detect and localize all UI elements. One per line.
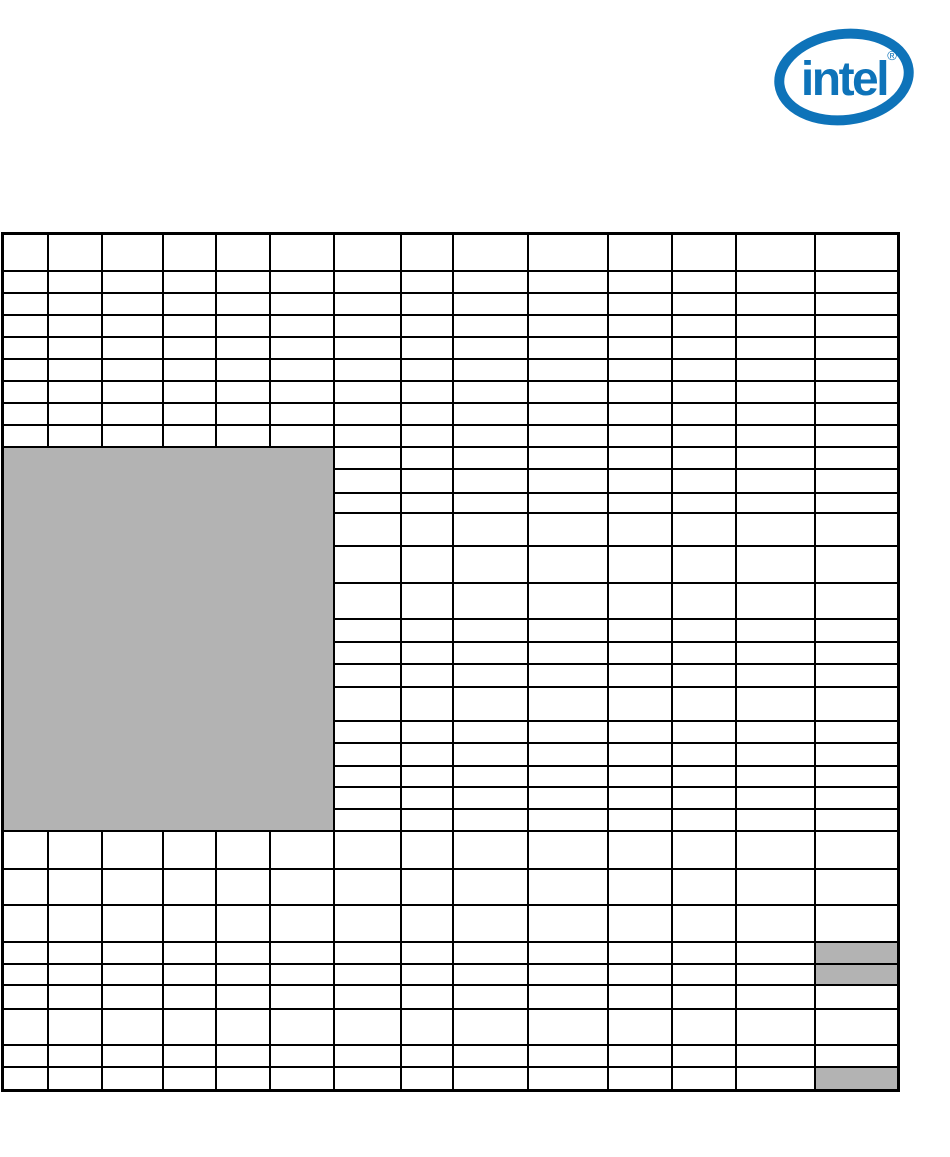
- table-cell: [401, 642, 453, 664]
- table-cell: [608, 664, 672, 687]
- table-cell: [528, 787, 608, 809]
- table-cell: [216, 425, 270, 447]
- table-cell: [672, 619, 736, 642]
- table-cell: [453, 293, 528, 315]
- table-cell: [216, 271, 270, 293]
- table-cell: [334, 809, 401, 831]
- table-cell: [528, 425, 608, 447]
- table-cell: [163, 964, 216, 985]
- table-cell: [528, 359, 608, 381]
- table-cell: [528, 447, 608, 469]
- table-cell: [672, 469, 736, 493]
- table-cell: [334, 787, 401, 809]
- table-cell: [736, 642, 815, 664]
- table-cell: [334, 293, 401, 315]
- table-cell: [102, 425, 163, 447]
- table-cell: [48, 1009, 102, 1045]
- table-cell: [3, 359, 48, 381]
- table-cell: [453, 381, 528, 403]
- table-cell: [608, 293, 672, 315]
- table-cell: [672, 687, 736, 721]
- table-cell: [453, 1067, 528, 1091]
- table-cell: [401, 985, 453, 1009]
- table-cell: [401, 493, 453, 513]
- table-cell: [401, 403, 453, 425]
- redacted-gray-block: [3, 447, 334, 831]
- table-cell: [672, 546, 736, 583]
- table-cell: [3, 381, 48, 403]
- table-cell: [102, 964, 163, 985]
- table-cell: [334, 425, 401, 447]
- table-cell: [270, 831, 334, 869]
- data-table: [1, 232, 900, 1092]
- table-cell: [453, 869, 528, 905]
- table-cell: [528, 942, 608, 964]
- table-cell: [216, 905, 270, 942]
- table-cell: [334, 721, 401, 743]
- table-cell: [48, 234, 102, 271]
- table-cell: [453, 447, 528, 469]
- table-cell: [736, 493, 815, 513]
- table-cell: [216, 985, 270, 1009]
- table-cell: [270, 381, 334, 403]
- table-cell: [163, 985, 216, 1009]
- table-cell: [216, 869, 270, 905]
- table-cell: [528, 513, 608, 546]
- table-cell: [528, 469, 608, 493]
- table-cell: [672, 315, 736, 337]
- table-cell: [48, 337, 102, 359]
- table-cell: [401, 447, 453, 469]
- table-cell: [3, 942, 48, 964]
- table-cell: [608, 381, 672, 403]
- table-cell: [216, 337, 270, 359]
- table-cell: [401, 315, 453, 337]
- table-cell: [102, 905, 163, 942]
- table-cell: [48, 964, 102, 985]
- table-cell: [401, 546, 453, 583]
- table-cell: [815, 359, 899, 381]
- table-cell: [48, 831, 102, 869]
- table-cell: [401, 293, 453, 315]
- table-cell: [216, 359, 270, 381]
- table-cell: [453, 469, 528, 493]
- table-cell: [736, 469, 815, 493]
- table-cell: [528, 664, 608, 687]
- table-cell: [163, 403, 216, 425]
- table-cell: [815, 619, 899, 642]
- table-cell: [163, 905, 216, 942]
- table-cell: [270, 271, 334, 293]
- table-cell: [672, 964, 736, 985]
- table-cell: [163, 234, 216, 271]
- table-cell: [815, 743, 899, 766]
- table-cell: [401, 809, 453, 831]
- table-cell: [102, 985, 163, 1009]
- table-cell: [3, 234, 48, 271]
- table-cell: [401, 721, 453, 743]
- table-cell: [334, 546, 401, 583]
- table-cell: [528, 1067, 608, 1091]
- table-cell: [528, 831, 608, 869]
- table-cell: [334, 985, 401, 1009]
- table-cell: [270, 1067, 334, 1091]
- table-cell: [3, 337, 48, 359]
- table-cell: [270, 905, 334, 942]
- table-cell: [528, 1009, 608, 1045]
- table-cell: [608, 619, 672, 642]
- table-cell: [736, 905, 815, 942]
- table-cell: [216, 315, 270, 337]
- highlighted-gray-cell: [815, 942, 899, 964]
- table-cell: [401, 787, 453, 809]
- table-cell: [334, 619, 401, 642]
- table-cell: [401, 831, 453, 869]
- table-cell: [608, 743, 672, 766]
- table-cell: [453, 1009, 528, 1045]
- table-cell: [401, 513, 453, 546]
- table-cell: [608, 403, 672, 425]
- table-cell: [48, 1045, 102, 1067]
- intel-logo-text: intel: [801, 53, 887, 106]
- table-cell: [528, 403, 608, 425]
- table-cell: [163, 1067, 216, 1091]
- table-cell: [736, 315, 815, 337]
- table-cell: [815, 315, 899, 337]
- table-cell: [453, 271, 528, 293]
- table-cell: [453, 687, 528, 721]
- table-cell: [48, 293, 102, 315]
- table-cell: [815, 337, 899, 359]
- table-cell: [608, 315, 672, 337]
- table-cell: [672, 642, 736, 664]
- table-cell: [102, 869, 163, 905]
- table-cell: [815, 381, 899, 403]
- table-cell: [528, 493, 608, 513]
- table-cell: [48, 359, 102, 381]
- table-cell: [401, 869, 453, 905]
- table-cell: [736, 721, 815, 743]
- table-cell: [270, 985, 334, 1009]
- table-cell: [453, 583, 528, 619]
- table-cell: [453, 619, 528, 642]
- table-cell: [815, 583, 899, 619]
- table-cell: [608, 425, 672, 447]
- table-cell: [3, 403, 48, 425]
- table-cell: [736, 942, 815, 964]
- table-cell: [334, 493, 401, 513]
- table-cell: [608, 493, 672, 513]
- table-cell: [163, 869, 216, 905]
- table-cell: [815, 985, 899, 1009]
- table-cell: [736, 359, 815, 381]
- table-cell: [608, 359, 672, 381]
- table-cell: [815, 469, 899, 493]
- table-cell: [334, 1067, 401, 1091]
- table-cell: [102, 1009, 163, 1045]
- table-cell: [672, 809, 736, 831]
- table-cell: [672, 403, 736, 425]
- table-cell: [453, 546, 528, 583]
- table-cell: [736, 687, 815, 721]
- table-cell: [453, 425, 528, 447]
- table-cell: [736, 546, 815, 583]
- table-cell: [102, 315, 163, 337]
- table-cell: [815, 1045, 899, 1067]
- registered-mark-icon: ®: [887, 48, 897, 63]
- table-cell: [270, 293, 334, 315]
- table-cell: [528, 743, 608, 766]
- table-cell: [815, 831, 899, 869]
- table-cell: [163, 831, 216, 869]
- table-cell: [672, 337, 736, 359]
- table-cell: [334, 234, 401, 271]
- table-cell: [453, 831, 528, 869]
- table-cell: [163, 271, 216, 293]
- table-cell: [334, 381, 401, 403]
- document-page: intel ®: [0, 0, 950, 1157]
- table-cell: [334, 1045, 401, 1067]
- table-cell: [270, 869, 334, 905]
- table-cell: [815, 721, 899, 743]
- table-cell: [672, 787, 736, 809]
- table-cell: [216, 403, 270, 425]
- table-cell: [401, 687, 453, 721]
- table-cell: [608, 234, 672, 271]
- table-cell: [270, 403, 334, 425]
- table-cell: [401, 337, 453, 359]
- table-cell: [453, 642, 528, 664]
- table-cell: [401, 942, 453, 964]
- table-cell: [401, 766, 453, 787]
- table-cell: [401, 381, 453, 403]
- table-cell: [815, 642, 899, 664]
- table-cell: [163, 337, 216, 359]
- table-cell: [736, 381, 815, 403]
- table-cell: [736, 271, 815, 293]
- table-cell: [216, 942, 270, 964]
- table-cell: [334, 315, 401, 337]
- table-cell: [48, 869, 102, 905]
- table-cell: [401, 1009, 453, 1045]
- table-cell: [672, 293, 736, 315]
- table-cell: [528, 234, 608, 271]
- table-cell: [48, 315, 102, 337]
- table-cell: [528, 619, 608, 642]
- table-cell: [815, 546, 899, 583]
- table-cell: [334, 513, 401, 546]
- table-cell: [453, 985, 528, 1009]
- table-cell: [672, 942, 736, 964]
- table-cell: [736, 985, 815, 1009]
- table-cell: [163, 359, 216, 381]
- table-cell: [736, 766, 815, 787]
- table-cell: [736, 447, 815, 469]
- table-cell: [216, 1067, 270, 1091]
- table-cell: [608, 687, 672, 721]
- table-cell: [3, 315, 48, 337]
- table-cell: [815, 766, 899, 787]
- table-cell: [3, 1067, 48, 1091]
- table-cell: [608, 831, 672, 869]
- table-cell: [736, 1009, 815, 1045]
- table-cell: [672, 721, 736, 743]
- table-cell: [672, 905, 736, 942]
- table-cell: [736, 743, 815, 766]
- table-cell: [3, 964, 48, 985]
- table-cell: [453, 664, 528, 687]
- table-cell: [672, 381, 736, 403]
- table-cell: [736, 1045, 815, 1067]
- table-cell: [608, 469, 672, 493]
- table-cell: [102, 234, 163, 271]
- table-cell: [48, 381, 102, 403]
- table-cell: [401, 1067, 453, 1091]
- table-cell: [453, 905, 528, 942]
- table-cell: [401, 469, 453, 493]
- table-cell: [736, 964, 815, 985]
- table-cell: [815, 234, 899, 271]
- table-cell: [102, 831, 163, 869]
- table-cell: [528, 546, 608, 583]
- table-cell: [216, 1009, 270, 1045]
- table-cell: [736, 583, 815, 619]
- table-cell: [401, 359, 453, 381]
- table-cell: [736, 513, 815, 546]
- table-cell: [528, 381, 608, 403]
- table-cell: [334, 469, 401, 493]
- table-cell: [163, 425, 216, 447]
- table-cell: [270, 315, 334, 337]
- table-cell: [48, 271, 102, 293]
- table-cell: [216, 964, 270, 985]
- table-cell: [3, 985, 48, 1009]
- table-cell: [736, 234, 815, 271]
- table-cell: [528, 271, 608, 293]
- table-cell: [334, 447, 401, 469]
- table-cell: [736, 664, 815, 687]
- table-cell: [270, 942, 334, 964]
- table-cell: [102, 1067, 163, 1091]
- table-cell: [401, 425, 453, 447]
- table-cell: [401, 664, 453, 687]
- table-cell: [48, 905, 102, 942]
- table-cell: [334, 1009, 401, 1045]
- table-cell: [334, 905, 401, 942]
- table-cell: [3, 869, 48, 905]
- table-cell: [672, 869, 736, 905]
- table-cell: [608, 337, 672, 359]
- table-cell: [608, 942, 672, 964]
- table-cell: [334, 766, 401, 787]
- table-cell: [102, 1045, 163, 1067]
- table-cell: [401, 743, 453, 766]
- table-cell: [334, 831, 401, 869]
- table-cell: [3, 1045, 48, 1067]
- table-cell: [736, 1067, 815, 1091]
- table-cell: [815, 271, 899, 293]
- table-cell: [163, 293, 216, 315]
- table-cell: [334, 743, 401, 766]
- table-cell: [3, 271, 48, 293]
- table-cell: [528, 337, 608, 359]
- table-cell: [528, 1045, 608, 1067]
- table-cell: [608, 1045, 672, 1067]
- table-cell: [48, 985, 102, 1009]
- table-cell: [528, 642, 608, 664]
- table-cell: [401, 271, 453, 293]
- table-cell: [270, 359, 334, 381]
- table-cell: [453, 234, 528, 271]
- table-cell: [270, 425, 334, 447]
- table-cell: [453, 513, 528, 546]
- table-cell: [401, 619, 453, 642]
- table-cell: [672, 766, 736, 787]
- table-cell: [3, 831, 48, 869]
- table-cell: [672, 1045, 736, 1067]
- table-cell: [608, 546, 672, 583]
- table-cell: [453, 809, 528, 831]
- table-cell: [216, 1045, 270, 1067]
- table-cell: [270, 234, 334, 271]
- table-cell: [528, 985, 608, 1009]
- table-cell: [102, 271, 163, 293]
- table-cell: [736, 293, 815, 315]
- table-cell: [736, 337, 815, 359]
- table-cell: [815, 403, 899, 425]
- table-cell: [453, 359, 528, 381]
- table-cell: [401, 234, 453, 271]
- table-cell: [815, 687, 899, 721]
- intel-logo: intel ®: [773, 26, 918, 128]
- table-cell: [453, 766, 528, 787]
- table-cell: [3, 905, 48, 942]
- table-cell: [736, 809, 815, 831]
- table-cell: [608, 1067, 672, 1091]
- table-cell: [815, 447, 899, 469]
- table-cell: [453, 337, 528, 359]
- table-cell: [736, 787, 815, 809]
- table-cell: [608, 583, 672, 619]
- table-cell: [608, 271, 672, 293]
- table-cell: [528, 583, 608, 619]
- table-cell: [453, 743, 528, 766]
- table-cell: [528, 293, 608, 315]
- table-cell: [815, 1009, 899, 1045]
- table-cell: [270, 337, 334, 359]
- table-cell: [102, 381, 163, 403]
- table-cell: [102, 337, 163, 359]
- table-cell: [334, 664, 401, 687]
- table-cell: [736, 619, 815, 642]
- table-cell: [163, 1009, 216, 1045]
- table-cell: [528, 315, 608, 337]
- table-cell: [48, 1067, 102, 1091]
- table-cell: [672, 583, 736, 619]
- table-cell: [672, 513, 736, 546]
- table-cell: [216, 831, 270, 869]
- table-cell: [608, 809, 672, 831]
- table-cell: [453, 721, 528, 743]
- table-cell: [528, 721, 608, 743]
- table-cell: [453, 1045, 528, 1067]
- table-cell: [270, 1009, 334, 1045]
- table-cell: [815, 513, 899, 546]
- table-cell: [163, 942, 216, 964]
- table-cell: [401, 905, 453, 942]
- table-cell: [334, 687, 401, 721]
- table-cell: [3, 1009, 48, 1045]
